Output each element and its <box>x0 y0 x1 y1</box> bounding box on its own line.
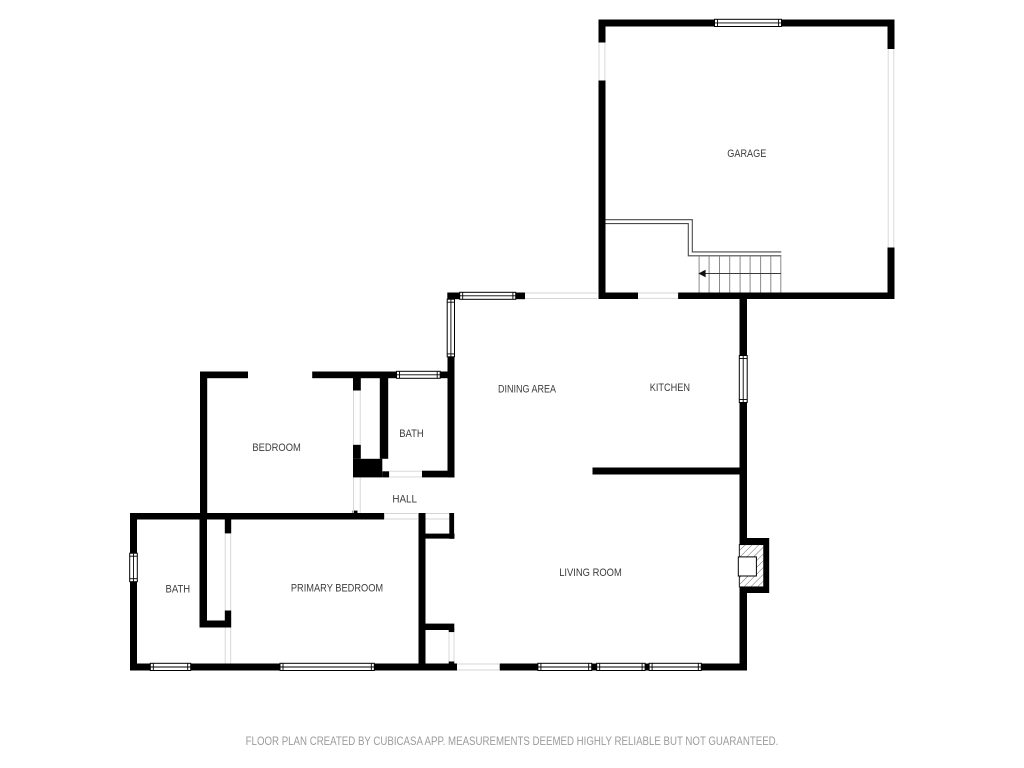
svg-text:LIVING ROOM: LIVING ROOM <box>559 567 622 579</box>
svg-text:BATH: BATH <box>166 584 191 596</box>
svg-text:BATH: BATH <box>399 428 424 440</box>
svg-text:FLOOR PLAN CREATED BY CUBICASA: FLOOR PLAN CREATED BY CUBICASA APP. MEAS… <box>246 734 779 748</box>
svg-text:HALL: HALL <box>392 493 417 505</box>
svg-text:KITCHEN: KITCHEN <box>650 382 690 394</box>
svg-text:BEDROOM: BEDROOM <box>252 442 301 454</box>
svg-text:GARAGE: GARAGE <box>727 148 766 160</box>
svg-text:PRIMARY BEDROOM: PRIMARY BEDROOM <box>291 582 383 594</box>
svg-text:DINING AREA: DINING AREA <box>498 384 557 396</box>
